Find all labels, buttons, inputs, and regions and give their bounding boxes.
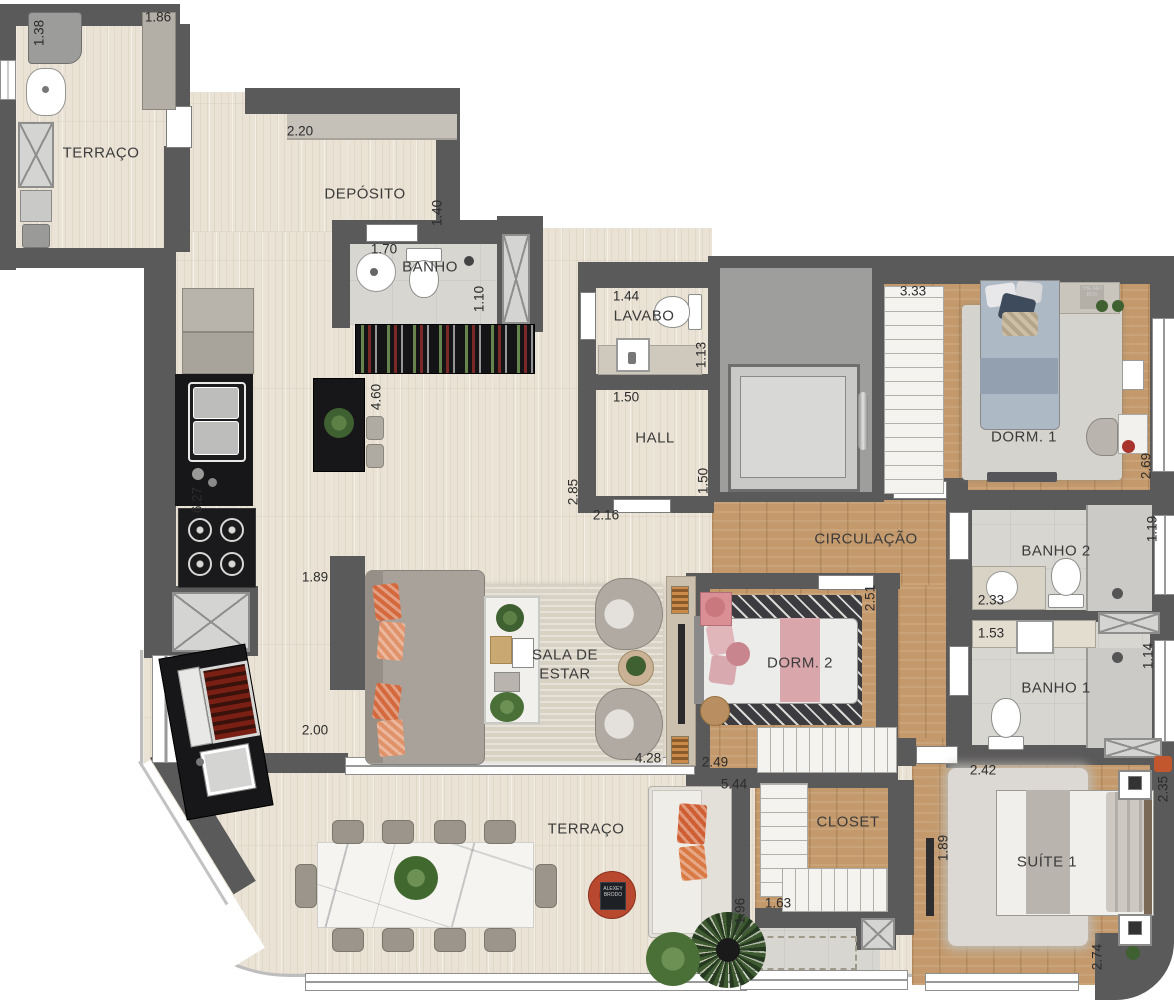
dim-2-51: 2.51 (863, 585, 878, 611)
dining-chair (382, 820, 414, 844)
pouf-book: ALEXEY BRODO (600, 882, 626, 910)
door-banho1 (949, 646, 969, 696)
table-plant (496, 604, 524, 632)
orange-decor (1154, 756, 1172, 772)
dim-1-89-b: 1.89 (936, 835, 951, 861)
table-plant-2 (490, 692, 524, 722)
pillow-round (726, 642, 750, 666)
dining-chair (434, 928, 466, 952)
burner (188, 552, 212, 576)
dining-chair (332, 928, 364, 952)
sink-basin (193, 421, 239, 455)
alcove-dashed-area (757, 936, 857, 970)
dim-1-96: 1.96 (733, 898, 748, 924)
side-table-dorm2 (700, 696, 730, 726)
stool (366, 416, 384, 440)
dim-4-28: 4.28 (635, 751, 661, 766)
wall-segment (164, 146, 190, 252)
plant-small (1112, 300, 1124, 312)
dim-2-74: 2.74 (1090, 944, 1105, 970)
dim-2-49: 2.49 (702, 755, 728, 770)
wine-rack (355, 324, 535, 374)
bench-banho1 (1104, 738, 1162, 758)
dim-1-44: 1.44 (613, 289, 639, 304)
plant-small (1126, 946, 1140, 960)
wall-segment (245, 88, 460, 114)
toilet-tank (988, 736, 1024, 750)
side-table-plant (626, 656, 646, 676)
room-label-banho2: BANHO 2 (1021, 543, 1090, 560)
shaft-x-panel (502, 234, 530, 324)
pouf-book-text: ALEXEY BRODO (601, 887, 625, 898)
stove (178, 508, 256, 588)
sink-banho1 (1016, 620, 1054, 654)
dining-chair (484, 928, 516, 952)
shower-head-icon (1112, 652, 1123, 663)
wall-segment (578, 262, 718, 288)
dining-chair (484, 820, 516, 844)
faucet-icon (628, 352, 636, 364)
room-label-deposito: DEPÓSITO (324, 186, 405, 203)
wardrobe-dorm2 (757, 727, 897, 773)
shower-head-icon (1112, 588, 1123, 599)
wall-segment (332, 220, 512, 244)
wall-art (1122, 360, 1144, 390)
room-label-suite1: SUÍTE 1 (1017, 854, 1077, 871)
room-label-sala: SALA DE ESTAR (519, 646, 611, 684)
elevator-car-inner (740, 376, 846, 478)
pillow-orange (376, 719, 405, 757)
toilet-bowl (1051, 558, 1081, 596)
utility-tub (20, 190, 52, 222)
door-lavabo (580, 292, 596, 340)
palm-pot (716, 938, 740, 962)
appliance-dot (208, 478, 217, 487)
plant-small (1096, 300, 1108, 312)
shaft-x-panel (18, 122, 54, 188)
red-lamp (1122, 440, 1135, 453)
pouf-pink-top (705, 597, 725, 617)
burner (188, 518, 212, 542)
dim-1-53: 1.53 (978, 626, 1004, 641)
grill-sink (201, 744, 256, 796)
room-label-dorm1: DORM. 1 (991, 429, 1057, 446)
desk-chair (1086, 418, 1118, 456)
table-tray (494, 672, 520, 692)
faucet-icon (196, 758, 204, 766)
room-label-circulacao: CIRCULAÇÃO (814, 531, 917, 548)
dim-3-33: 3.33 (900, 284, 926, 299)
tv-suite (926, 838, 934, 916)
dim-1-13: 1.13 (694, 342, 709, 368)
kitchen-cabinet (182, 332, 254, 374)
dim-1-50-a: 1.50 (613, 390, 639, 405)
elevator-handle (858, 392, 868, 450)
dim-1-14: 1.14 (1141, 643, 1156, 669)
fridge (182, 288, 254, 332)
dim-2-20: 2.20 (287, 124, 313, 139)
faucet-icon (370, 268, 378, 276)
dining-chair (295, 864, 317, 908)
dim-1-19: 1.19 (1145, 516, 1160, 542)
door-suite (916, 746, 958, 764)
door-hall (613, 499, 671, 513)
bed-suite-headboard (1144, 788, 1152, 916)
dining-chair (434, 820, 466, 844)
dim-4-60: 4.60 (369, 384, 384, 410)
room-label-lavabo: LAVABO (614, 308, 675, 325)
closet-dorm1 (884, 286, 944, 494)
dim-1-63: 1.63 (765, 896, 791, 911)
dim-2-33: 2.33 (978, 593, 1004, 608)
toilet-tank (1048, 594, 1084, 608)
faucet-icon (42, 86, 49, 93)
wall-segment (595, 374, 710, 390)
room-label-terraco-servico: TERRAÇO (63, 145, 140, 162)
shaft-x-panel (861, 918, 895, 950)
door-banho2 (949, 512, 969, 560)
dining-chair (382, 928, 414, 952)
tv (678, 624, 685, 724)
room-label-terraco: TERRAÇO (548, 821, 625, 838)
room-label-closet: CLOSET (816, 814, 879, 831)
dim-1-70: 1.70 (371, 242, 397, 257)
window-banho1 (1154, 640, 1174, 742)
lamp-icon (1128, 921, 1142, 935)
wall-segment (0, 248, 152, 268)
bed-suite-throw (1026, 790, 1070, 914)
table-plant-center (394, 856, 438, 900)
dining-chair (332, 820, 364, 844)
dim-2-16: 2.16 (593, 508, 619, 523)
art-box-text: THE ART BOX (1080, 287, 1104, 298)
room-label-banho1: BANHO 1 (1021, 680, 1090, 697)
dim-1-89-a: 1.89 (302, 570, 328, 585)
armchair (595, 578, 663, 650)
bed-dorm2-headboard (694, 616, 704, 704)
basket (1002, 312, 1038, 336)
table-book (490, 636, 512, 664)
pillow-orange (376, 621, 405, 661)
wall-segment (0, 4, 16, 270)
window-alcove (740, 970, 908, 990)
wall-segment (332, 220, 350, 328)
utility-box (22, 224, 50, 248)
window-suite-bottom (925, 973, 1079, 991)
burner (220, 552, 244, 576)
bed-bench (987, 472, 1057, 482)
window (0, 60, 16, 100)
pillow-orange (372, 683, 402, 722)
sink-basin (193, 387, 239, 419)
console-decor (671, 736, 689, 764)
window-dorm1 (1152, 318, 1174, 472)
room-label-dorm2: DORM. 2 (767, 655, 833, 672)
cabinet-tall (142, 12, 176, 110)
dim-2-00: 2.00 (302, 723, 328, 738)
dim-2-85: 2.85 (566, 479, 581, 505)
dim-1-10: 1.10 (472, 286, 487, 312)
pillow-orange (677, 803, 708, 845)
toilet-bowl (991, 698, 1021, 738)
console-decor (671, 586, 689, 614)
dim-1-38: 1.38 (32, 20, 47, 46)
bed-dorm1-band (980, 358, 1058, 394)
lamp-icon (1128, 776, 1142, 790)
burner (220, 518, 244, 542)
plant-medium (646, 932, 700, 986)
lavabo-counter (598, 345, 702, 375)
dim-1-40: 1.40 (430, 200, 445, 226)
dining-chair (535, 864, 557, 908)
room-label-banho: BANHO (402, 259, 458, 276)
pillow-orange (372, 583, 402, 622)
door-banho-servico (366, 224, 418, 242)
dim-2-42: 2.42 (970, 763, 996, 778)
door-terraco-servico (166, 106, 192, 148)
floor-plan: THE ART BOX (0, 0, 1174, 1000)
armchair (595, 688, 663, 760)
island-plant (324, 408, 354, 438)
dim-2-69: 2.69 (1139, 453, 1154, 479)
shower-head-icon (464, 256, 474, 266)
shaft-x-panel (172, 592, 250, 652)
stool (366, 444, 384, 468)
pillow-orange (678, 845, 707, 882)
toilet-tank (688, 294, 702, 330)
dim-2-35: 2.35 (1156, 776, 1171, 802)
wall-sala-stub (330, 556, 365, 690)
bench-banho2 (1098, 612, 1160, 634)
bed-suite-pillows (1106, 792, 1144, 912)
dim-1-50-b: 1.50 (696, 468, 711, 494)
dim-5-44: 5.44 (721, 777, 747, 792)
closet-wardrobe-h (782, 868, 888, 912)
appliance-dot (192, 468, 204, 480)
dim-1-86: 1.86 (145, 10, 171, 25)
floor-circulacao-strip (898, 585, 948, 760)
dim-6-27: 6.27 (190, 487, 205, 513)
room-label-hall: HALL (635, 430, 675, 447)
